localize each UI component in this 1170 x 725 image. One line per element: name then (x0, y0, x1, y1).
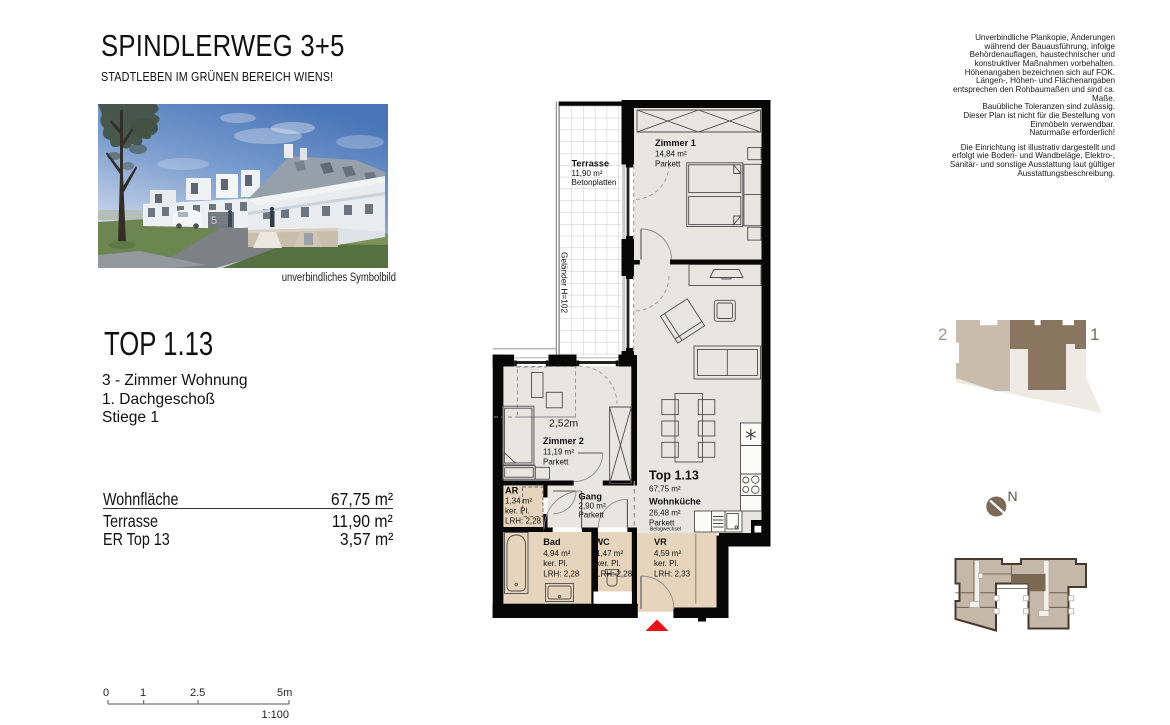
svg-text:1: 1 (140, 687, 146, 699)
svg-text:LRH: 2,28: LRH: 2,28 (596, 570, 633, 579)
svg-text:5: 5 (211, 215, 217, 227)
svg-text:ker. Pl.: ker. Pl. (596, 559, 620, 568)
svg-text:1: 1 (1090, 325, 1099, 344)
svg-text:2: 2 (938, 325, 947, 344)
svg-text:AR: AR (505, 486, 519, 496)
svg-text:0: 0 (103, 687, 109, 699)
svg-text:Parkett: Parkett (579, 511, 605, 520)
svg-text:1,47 m²: 1,47 m² (596, 549, 623, 558)
svg-text:ker. Pl.: ker. Pl. (543, 559, 567, 568)
svg-text:LRH: 2,28: LRH: 2,28 (543, 570, 580, 579)
svg-text:4,59 m²: 4,59 m² (654, 549, 681, 558)
svg-text:N: N (1008, 488, 1018, 504)
svg-text:WC: WC (595, 537, 611, 547)
svg-text:Gang: Gang (579, 492, 602, 502)
svg-text:5m: 5m (277, 687, 292, 699)
svg-text:2,52m: 2,52m (549, 418, 578, 430)
svg-text:Belagwechsel: Belagwechsel (650, 527, 681, 533)
svg-text:Wohnküche: Wohnküche (649, 497, 701, 507)
svg-text:2,90 m²: 2,90 m² (579, 502, 606, 511)
svg-text:LRH: 2,28: LRH: 2,28 (505, 517, 542, 526)
svg-text:11,19 m²: 11,19 m² (543, 448, 574, 457)
svg-text:ker. Pl.: ker. Pl. (654, 559, 678, 568)
svg-text:4,94 m²: 4,94 m² (543, 549, 570, 558)
svg-text:14,84 m²: 14,84 m² (655, 150, 687, 159)
svg-text:LRH: 2,33: LRH: 2,33 (654, 570, 691, 579)
svg-text:Zimmer 2: Zimmer 2 (543, 436, 584, 446)
svg-text:Zimmer 1: Zimmer 1 (655, 138, 696, 148)
svg-text:Betonplatten: Betonplatten (572, 178, 617, 187)
svg-text:11,90 m²: 11,90 m² (572, 169, 603, 178)
svg-text:26,48 m²: 26,48 m² (649, 509, 681, 518)
svg-text:Geländer H=102: Geländer H=102 (560, 252, 570, 314)
svg-text:Top 1.13: Top 1.13 (649, 469, 699, 483)
svg-text:67,75 m²: 67,75 m² (649, 485, 681, 494)
svg-text:Parkett: Parkett (543, 458, 569, 467)
svg-text:Bad: Bad (543, 537, 560, 547)
svg-text:1:100: 1:100 (261, 709, 289, 721)
svg-text:VR: VR (654, 537, 667, 547)
svg-text:ker. Pl.: ker. Pl. (505, 507, 529, 516)
svg-text:Parkett: Parkett (655, 160, 681, 169)
svg-text:2.5: 2.5 (190, 687, 205, 699)
svg-text:1,34 m²: 1,34 m² (505, 497, 532, 506)
svg-text:Terrasse: Terrasse (572, 159, 610, 169)
